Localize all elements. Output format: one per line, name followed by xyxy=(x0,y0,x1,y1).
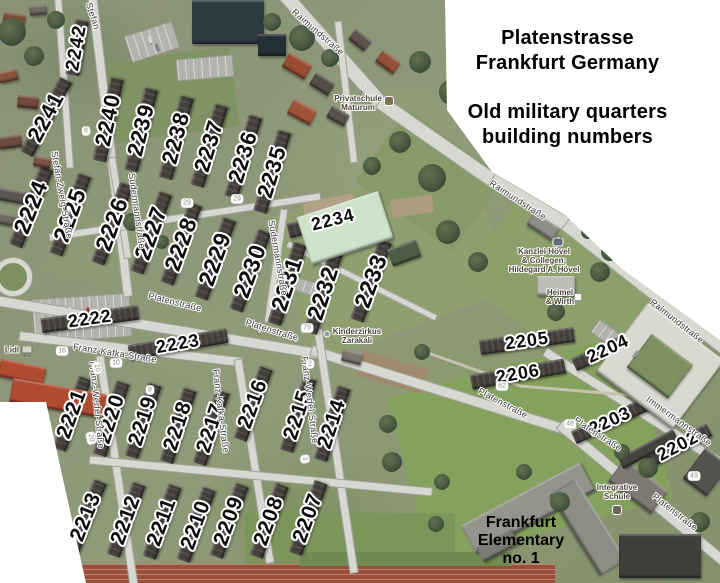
building-number: 2208 xyxy=(249,493,289,549)
tree xyxy=(363,157,381,175)
building-number: 2218 xyxy=(159,398,197,454)
road-segment xyxy=(235,359,274,562)
title-line-4: building numbers xyxy=(425,125,710,150)
building-number: 2239 xyxy=(122,101,160,159)
street-label: Platenstraße xyxy=(572,415,623,453)
tree xyxy=(428,516,444,532)
building xyxy=(627,334,694,399)
road-segment xyxy=(287,242,437,320)
fields-layer xyxy=(0,0,720,583)
building-number: 2241 xyxy=(22,88,70,147)
building xyxy=(296,191,393,265)
tree xyxy=(487,139,513,165)
poi-label: Heimel& Wirth xyxy=(546,288,574,306)
tree xyxy=(614,444,630,460)
barracks-building xyxy=(350,239,392,323)
barracks-building xyxy=(209,483,248,559)
barracks-building xyxy=(91,182,133,266)
tree xyxy=(550,492,570,512)
barracks-building xyxy=(9,165,53,248)
tree xyxy=(516,169,538,191)
tree xyxy=(461,113,483,135)
tree xyxy=(690,512,710,532)
tree xyxy=(418,164,446,192)
building-number: 2227 xyxy=(129,202,173,263)
poi-label: Lidl xyxy=(5,345,19,354)
building-number: 2236 xyxy=(223,128,263,186)
building xyxy=(461,462,595,554)
barracks-building xyxy=(20,77,72,158)
house-number-marker: 2 xyxy=(306,360,314,369)
grass-field xyxy=(355,350,429,394)
grass-field xyxy=(459,191,661,380)
road-segment xyxy=(90,457,433,496)
building-number: 2234 xyxy=(309,204,357,235)
building xyxy=(258,34,286,56)
title-block: Platenstrasse Frankfurt Germany Old mili… xyxy=(425,26,710,150)
street-label: Sudermannstraße xyxy=(127,172,148,249)
building-number: 2211 xyxy=(142,495,182,550)
parking-lot xyxy=(279,273,321,296)
building-number: 2204 xyxy=(584,330,633,368)
building-number: 2202 xyxy=(654,426,703,465)
box-icon xyxy=(574,293,582,301)
building-number: 2206 xyxy=(494,360,541,388)
building xyxy=(375,50,401,74)
street-label: Raimundstraße xyxy=(290,7,346,57)
road-segment xyxy=(279,0,385,106)
building-number: 2223 xyxy=(154,330,201,358)
buildings-layer xyxy=(0,0,720,583)
barracks-building xyxy=(158,96,193,181)
building-number: 2228 xyxy=(159,213,203,274)
building-number: 2213 xyxy=(65,489,106,545)
road-segment xyxy=(50,193,321,240)
building-number: 2229 xyxy=(193,228,237,289)
building xyxy=(596,303,720,429)
street-label: Franz-Kafka-Straße xyxy=(73,341,158,364)
tree xyxy=(590,262,610,282)
barracks-building xyxy=(303,251,342,335)
street-label: Franz-Werfel-Straße xyxy=(87,361,106,449)
parking-lot xyxy=(177,56,234,81)
parked-car xyxy=(633,350,640,357)
street-label: Platenstraße xyxy=(147,291,202,314)
road-segment xyxy=(20,332,241,366)
barracks-building xyxy=(267,242,306,326)
building xyxy=(0,69,18,84)
house-number-marker: 49 xyxy=(688,472,700,481)
sports-infield xyxy=(300,552,512,566)
house-number-marker: 20 xyxy=(85,431,96,444)
building xyxy=(0,211,29,228)
tree xyxy=(434,474,450,490)
parking-lot xyxy=(33,294,132,343)
building xyxy=(475,528,519,563)
building-number: 2226 xyxy=(90,193,134,254)
street-label: Franz-Kafka-Straße xyxy=(211,368,231,453)
tree xyxy=(389,131,411,153)
building-number: 2231 xyxy=(266,254,309,315)
tree xyxy=(547,303,565,321)
building-number: 2238 xyxy=(157,109,196,167)
footpath xyxy=(520,385,640,398)
barracks-building xyxy=(160,388,197,465)
barracks-building xyxy=(571,327,645,371)
tree xyxy=(516,464,532,480)
building xyxy=(537,276,575,296)
barracks-building xyxy=(93,381,130,458)
roundabout xyxy=(0,258,32,296)
street-label: Raimundstraße xyxy=(648,297,706,345)
school-icon xyxy=(385,97,393,105)
platenstrasse-aerial-map: Platenstrasse Frankfurt Germany Old mili… xyxy=(0,0,720,583)
street-label: Stefan-Zweig-Straße xyxy=(49,150,74,239)
barracks-building xyxy=(229,229,271,313)
building-number: 2215 xyxy=(279,387,317,443)
corner-white-wedge xyxy=(0,0,720,583)
building xyxy=(287,99,317,125)
building-number: 2205 xyxy=(504,328,551,355)
building xyxy=(282,53,313,80)
grass-field xyxy=(266,149,515,362)
house-number-marker: 2 xyxy=(300,454,310,464)
barracks-building xyxy=(92,77,123,162)
tree xyxy=(581,225,595,239)
barracks-building xyxy=(160,202,202,286)
road-segment xyxy=(0,296,321,359)
title-gap xyxy=(425,76,710,100)
building xyxy=(348,29,372,52)
house-number-marker: 8 xyxy=(82,127,90,136)
title-line-3: Old military quarters xyxy=(425,100,710,125)
building xyxy=(619,534,701,578)
barracks-building xyxy=(253,130,291,214)
grass-field xyxy=(355,108,505,251)
building xyxy=(0,358,46,385)
barracks-building xyxy=(65,479,106,555)
building-number: 2232 xyxy=(302,263,345,324)
tree xyxy=(0,18,26,46)
title-white-panel xyxy=(0,0,720,583)
barracks-building xyxy=(224,115,262,199)
building xyxy=(0,134,22,149)
street-label: Platenstraße xyxy=(244,317,299,343)
barracks-building xyxy=(479,327,575,355)
tree xyxy=(321,49,339,67)
briefcase-icon xyxy=(554,239,563,246)
poi-label: KinderzirkusZarakali xyxy=(333,327,381,345)
building-number: 2237 xyxy=(189,117,229,175)
building-number: 2212 xyxy=(106,492,146,548)
building xyxy=(326,105,350,126)
tree xyxy=(382,452,402,472)
tree xyxy=(601,243,619,261)
building xyxy=(618,429,678,469)
barracks-building xyxy=(314,386,351,463)
building xyxy=(309,72,335,96)
building xyxy=(192,0,264,44)
parked-car xyxy=(154,43,159,51)
tree xyxy=(439,79,465,105)
grass-field xyxy=(390,194,434,218)
parked-car xyxy=(147,36,152,44)
cart-icon xyxy=(22,347,33,354)
barracks-building xyxy=(190,104,228,188)
barracks-building xyxy=(106,482,145,558)
grass-field xyxy=(302,193,357,223)
grass-field xyxy=(387,334,672,563)
building-number: 2203 xyxy=(586,402,635,440)
parked-car xyxy=(617,337,624,344)
building-number: 2210 xyxy=(176,497,216,553)
dot-icon xyxy=(325,332,330,337)
building-number: 2240 xyxy=(90,91,126,148)
tree xyxy=(638,458,658,478)
street-label: Immermannstraße xyxy=(644,394,713,448)
building xyxy=(683,448,720,496)
house-number-marker: 20 xyxy=(91,361,102,374)
parking-lot xyxy=(592,321,633,356)
barracks-building xyxy=(176,487,215,563)
road-segment xyxy=(311,346,580,438)
grass-field xyxy=(45,213,144,288)
building-number: 2207 xyxy=(288,490,328,546)
poi-label: PrivatschuleMaturum xyxy=(334,94,382,112)
footpath xyxy=(424,351,520,388)
tree xyxy=(468,252,488,272)
street-label: Sudermannstraße xyxy=(266,219,289,296)
barracks-building xyxy=(124,88,158,173)
building-number: 2225 xyxy=(48,184,92,245)
tree xyxy=(155,235,169,249)
house-number-marker: 16 xyxy=(56,347,68,356)
street-label: Platenstraße xyxy=(650,491,699,533)
road-segment xyxy=(97,355,138,583)
title-line-2: Frankfurt Germany xyxy=(425,51,710,76)
parked-car xyxy=(361,84,367,91)
building-number: 2209 xyxy=(209,493,249,549)
building xyxy=(29,4,47,15)
building xyxy=(550,479,626,575)
building-number: 2219 xyxy=(124,393,162,449)
road-segment xyxy=(88,0,132,296)
building-number: 2220 xyxy=(92,391,130,447)
house-number-marker: 29 xyxy=(231,195,243,204)
house-number-marker: 29 xyxy=(181,199,193,208)
barracks-building xyxy=(287,202,380,239)
building xyxy=(387,239,421,266)
road-segment xyxy=(109,158,131,259)
barracks-building xyxy=(40,305,139,333)
building-number: 2224 xyxy=(8,176,54,237)
trees-layer xyxy=(0,0,720,583)
building xyxy=(341,349,363,365)
parking-lot xyxy=(125,22,179,62)
barracks-building xyxy=(194,217,236,301)
building xyxy=(33,156,51,169)
grass-field xyxy=(100,46,240,143)
title-line-1: Platenstrasse xyxy=(425,26,710,51)
parked-car xyxy=(258,326,263,334)
barracks-building xyxy=(249,483,288,559)
house-number-marker: 79 xyxy=(301,324,313,333)
house-number-marker: 8 xyxy=(146,386,154,395)
road-segment xyxy=(55,0,73,168)
house-number-marker: 62 xyxy=(496,382,508,391)
building xyxy=(2,12,26,28)
barracks-building xyxy=(571,398,649,444)
tree xyxy=(414,344,430,360)
street-label: Franz-Werfel-Straße xyxy=(300,356,321,444)
road-segment xyxy=(265,210,287,323)
frankfurt-elementary-label: FrankfurtElementaryno. 1 xyxy=(478,514,564,568)
road-segment xyxy=(562,219,720,357)
school2-icon xyxy=(613,506,621,514)
building xyxy=(17,95,39,109)
grass-field xyxy=(245,513,455,583)
building-number: 2230 xyxy=(228,240,272,301)
barracks-building xyxy=(193,390,230,467)
building-number: 2222 xyxy=(67,306,114,333)
tree xyxy=(409,51,431,73)
barracks-building xyxy=(233,366,272,442)
barracks-building xyxy=(288,480,327,556)
barracks-building xyxy=(280,377,317,454)
building-number: 2221 xyxy=(52,386,92,442)
road-segment xyxy=(335,22,357,163)
barracks-building xyxy=(52,376,91,452)
poi-label: Kanzlei Hövel& Collegen;Hildegard A. Höv… xyxy=(509,247,580,275)
tree xyxy=(123,213,141,231)
street-label: Platenstraße xyxy=(477,386,530,420)
barracks-building xyxy=(125,383,162,460)
tree xyxy=(263,13,281,31)
tree xyxy=(289,25,315,51)
building-number: 2214 xyxy=(313,396,351,452)
building-number: 2242 xyxy=(62,23,92,72)
parked-car xyxy=(78,314,81,321)
building-number: 2217 xyxy=(192,400,230,456)
tree xyxy=(24,46,44,66)
road-segment xyxy=(557,422,720,579)
building-number: 2233 xyxy=(349,250,393,311)
running-track xyxy=(55,564,555,583)
barracks-building xyxy=(49,173,91,257)
roads-layer xyxy=(0,0,720,583)
barracks-building xyxy=(130,191,172,275)
building xyxy=(0,187,33,206)
house-number-marker: 48 xyxy=(564,420,576,429)
tree xyxy=(47,11,65,29)
road-segment xyxy=(489,174,570,229)
barracks-building xyxy=(644,423,712,468)
parked-car xyxy=(87,308,90,315)
parked-car xyxy=(69,307,72,314)
building xyxy=(9,378,107,418)
road-segment xyxy=(315,329,358,572)
house-number-marker: 10 xyxy=(110,359,122,368)
tree xyxy=(436,220,460,244)
satellite-base xyxy=(0,0,720,583)
parking-lots-layer xyxy=(0,0,720,583)
street-label: Stefan xyxy=(84,1,102,31)
barracks-building xyxy=(470,358,566,389)
building-number: 2216 xyxy=(233,376,273,432)
building xyxy=(526,212,559,241)
barracks-building xyxy=(142,484,181,560)
road-segment xyxy=(543,349,720,478)
road-segment xyxy=(376,97,495,186)
barracks-building xyxy=(127,328,228,360)
street-label: Raimundstraße xyxy=(488,178,548,222)
barracks-building xyxy=(65,20,88,77)
poi-label: IntegrativeSchule xyxy=(597,483,637,501)
tree xyxy=(379,415,397,433)
building xyxy=(608,459,668,514)
building-number: 2235 xyxy=(252,143,292,201)
map-annotations-layer: 2242224122402239223822372236223522242225… xyxy=(0,0,720,583)
